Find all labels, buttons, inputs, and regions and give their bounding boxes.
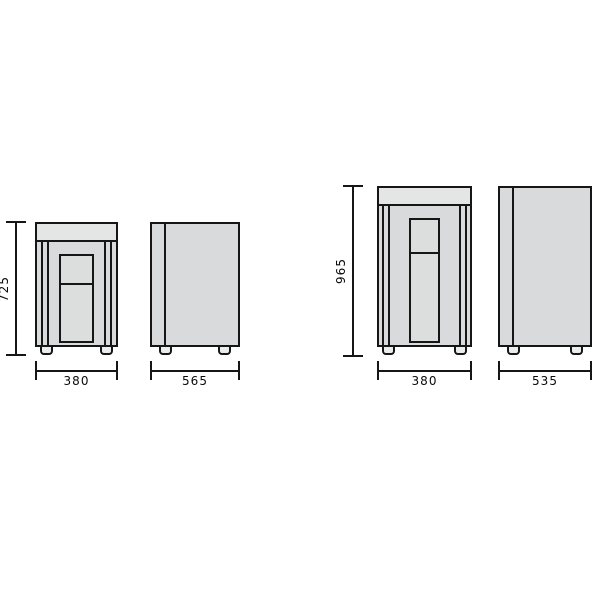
dimension-line: [352, 185, 354, 357]
unit-b-height-dimension: 965: [352, 185, 354, 357]
unit-a-front-door-divider: [61, 283, 92, 285]
unit-a-front-door: [59, 254, 94, 343]
unit-b-side-right-caster: [570, 345, 583, 355]
unit-a-width-label: 380: [35, 374, 118, 388]
unit-b-front-right-column: [459, 206, 467, 345]
unit-b-height-label: 965: [334, 249, 348, 293]
unit-a-depth-dimension: 565: [150, 361, 240, 393]
unit-b-depth-dimension: 535: [498, 361, 592, 393]
unit-a-front-right-caster: [100, 345, 113, 355]
unit-b-width-label: 380: [377, 374, 472, 388]
unit-b-front-right-caster: [454, 345, 467, 355]
unit-a-height-dimension: 725: [15, 221, 17, 356]
dimension-line: [35, 370, 118, 372]
dimension-tick: [343, 355, 363, 357]
unit-a-front-top-panel: [37, 224, 116, 242]
unit-b-front-left-column: [382, 206, 390, 345]
unit-b-width-dimension: 380: [377, 361, 472, 393]
unit-a-side-right-caster: [218, 345, 231, 355]
unit-b-depth-label: 535: [498, 374, 592, 388]
unit-a-side-view: [150, 222, 240, 347]
unit-a-depth-label: 565: [150, 374, 240, 388]
unit-a-width-dimension: 380: [35, 361, 118, 393]
unit-b-front-door: [409, 218, 440, 343]
dimension-line: [377, 370, 472, 372]
unit-b-side-door-edge-line: [512, 188, 514, 345]
unit-a-side-door-edge-line: [164, 224, 166, 345]
dimension-tick: [6, 354, 26, 356]
unit-a-front-view: [35, 222, 118, 347]
unit-b-side-view: [498, 186, 592, 347]
unit-a-front-left-column: [41, 242, 49, 345]
unit-b-front-left-caster: [382, 345, 395, 355]
dimension-tick: [6, 221, 26, 223]
dimension-line: [498, 370, 592, 372]
diagram-canvas: 725 380 565 965: [0, 0, 600, 600]
unit-b-front-door-divider: [411, 252, 438, 254]
dimension-line: [15, 221, 17, 356]
unit-b-front-view: [377, 186, 472, 347]
unit-a-height-label: 725: [0, 267, 11, 311]
unit-a-front-left-caster: [40, 345, 53, 355]
unit-a-side-left-caster: [159, 345, 172, 355]
unit-b-front-top-panel: [379, 188, 470, 206]
unit-b-side-left-caster: [507, 345, 520, 355]
unit-a-front-right-column: [104, 242, 112, 345]
dimension-line: [150, 370, 240, 372]
dimension-tick: [343, 185, 363, 187]
